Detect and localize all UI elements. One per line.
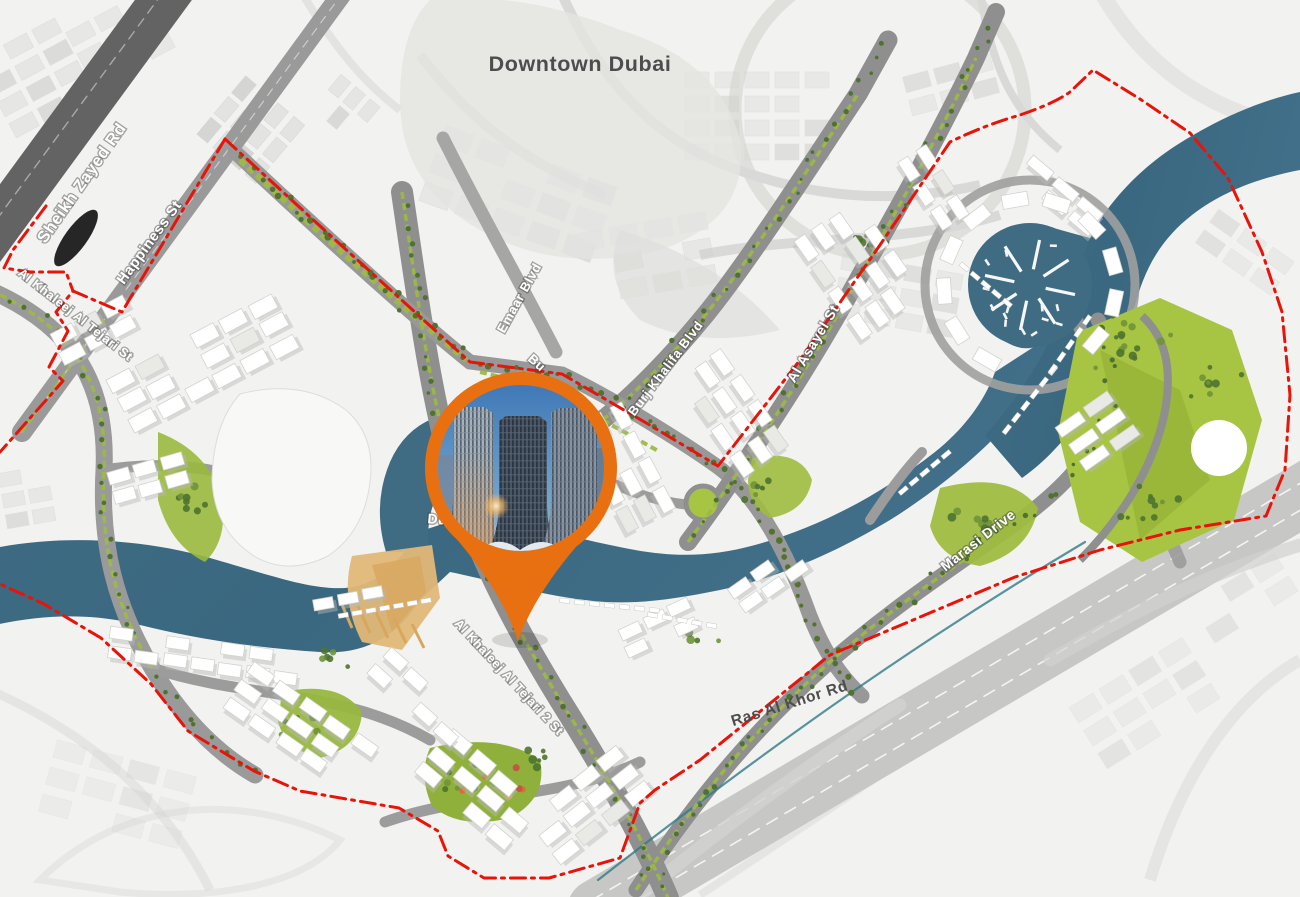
photo-sun-glow <box>483 493 509 519</box>
island-parcel <box>212 389 371 566</box>
park-white-circle <box>1191 420 1247 476</box>
label-downtown-dubai: Downtown Dubai <box>489 52 672 76</box>
masterplan-map: Downtown Dubai Sheikh Zayed Rd Happiness… <box>0 0 1300 897</box>
map-canvas: Downtown Dubai Sheikh Zayed Rd Happiness… <box>0 0 1300 897</box>
